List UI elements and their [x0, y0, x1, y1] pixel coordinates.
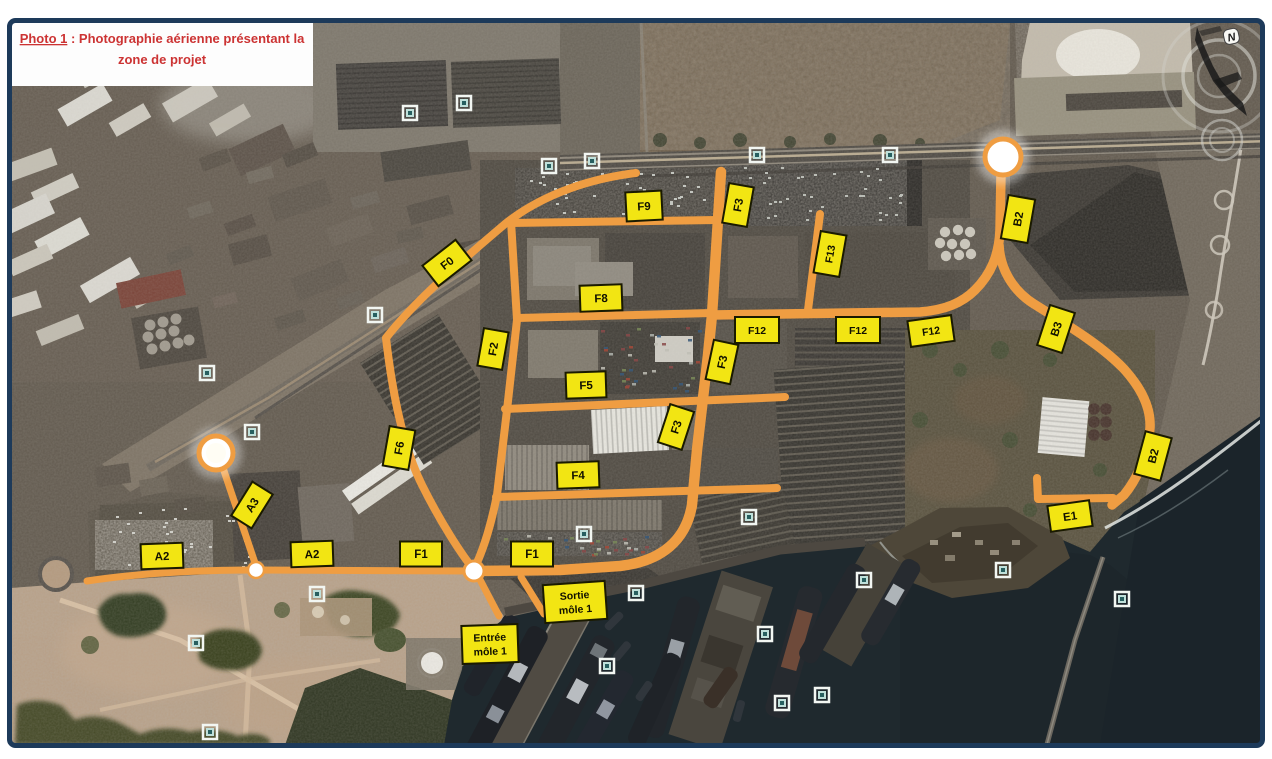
svg-text:Sortie: Sortie	[559, 589, 590, 603]
svg-text:môle 1: môle 1	[559, 603, 593, 617]
svg-text:A2: A2	[304, 549, 319, 562]
svg-text:A2: A2	[154, 551, 169, 564]
svg-text:F3: F3	[732, 198, 746, 213]
svg-text:môle 1: môle 1	[473, 645, 507, 658]
svg-text:B2: B2	[1012, 211, 1026, 228]
svg-text:F5: F5	[579, 380, 593, 392]
svg-text:Photo 1 : Photographie aérienn: Photo 1 : Photographie aérienne présenta…	[20, 31, 305, 46]
svg-text:F9: F9	[637, 201, 651, 214]
svg-text:F2: F2	[487, 342, 501, 357]
svg-text:F8: F8	[594, 293, 608, 305]
svg-text:E1: E1	[1062, 510, 1078, 524]
svg-text:F4: F4	[571, 470, 585, 482]
svg-text:F12: F12	[748, 325, 766, 337]
svg-text:F6: F6	[393, 441, 407, 456]
svg-text:F1: F1	[414, 549, 428, 561]
svg-text:zone de projet: zone de projet	[118, 52, 207, 67]
svg-text:F12: F12	[849, 325, 867, 337]
svg-text:F12: F12	[921, 325, 941, 339]
svg-text:Entrée: Entrée	[473, 631, 506, 644]
svg-text:F1: F1	[525, 549, 539, 561]
